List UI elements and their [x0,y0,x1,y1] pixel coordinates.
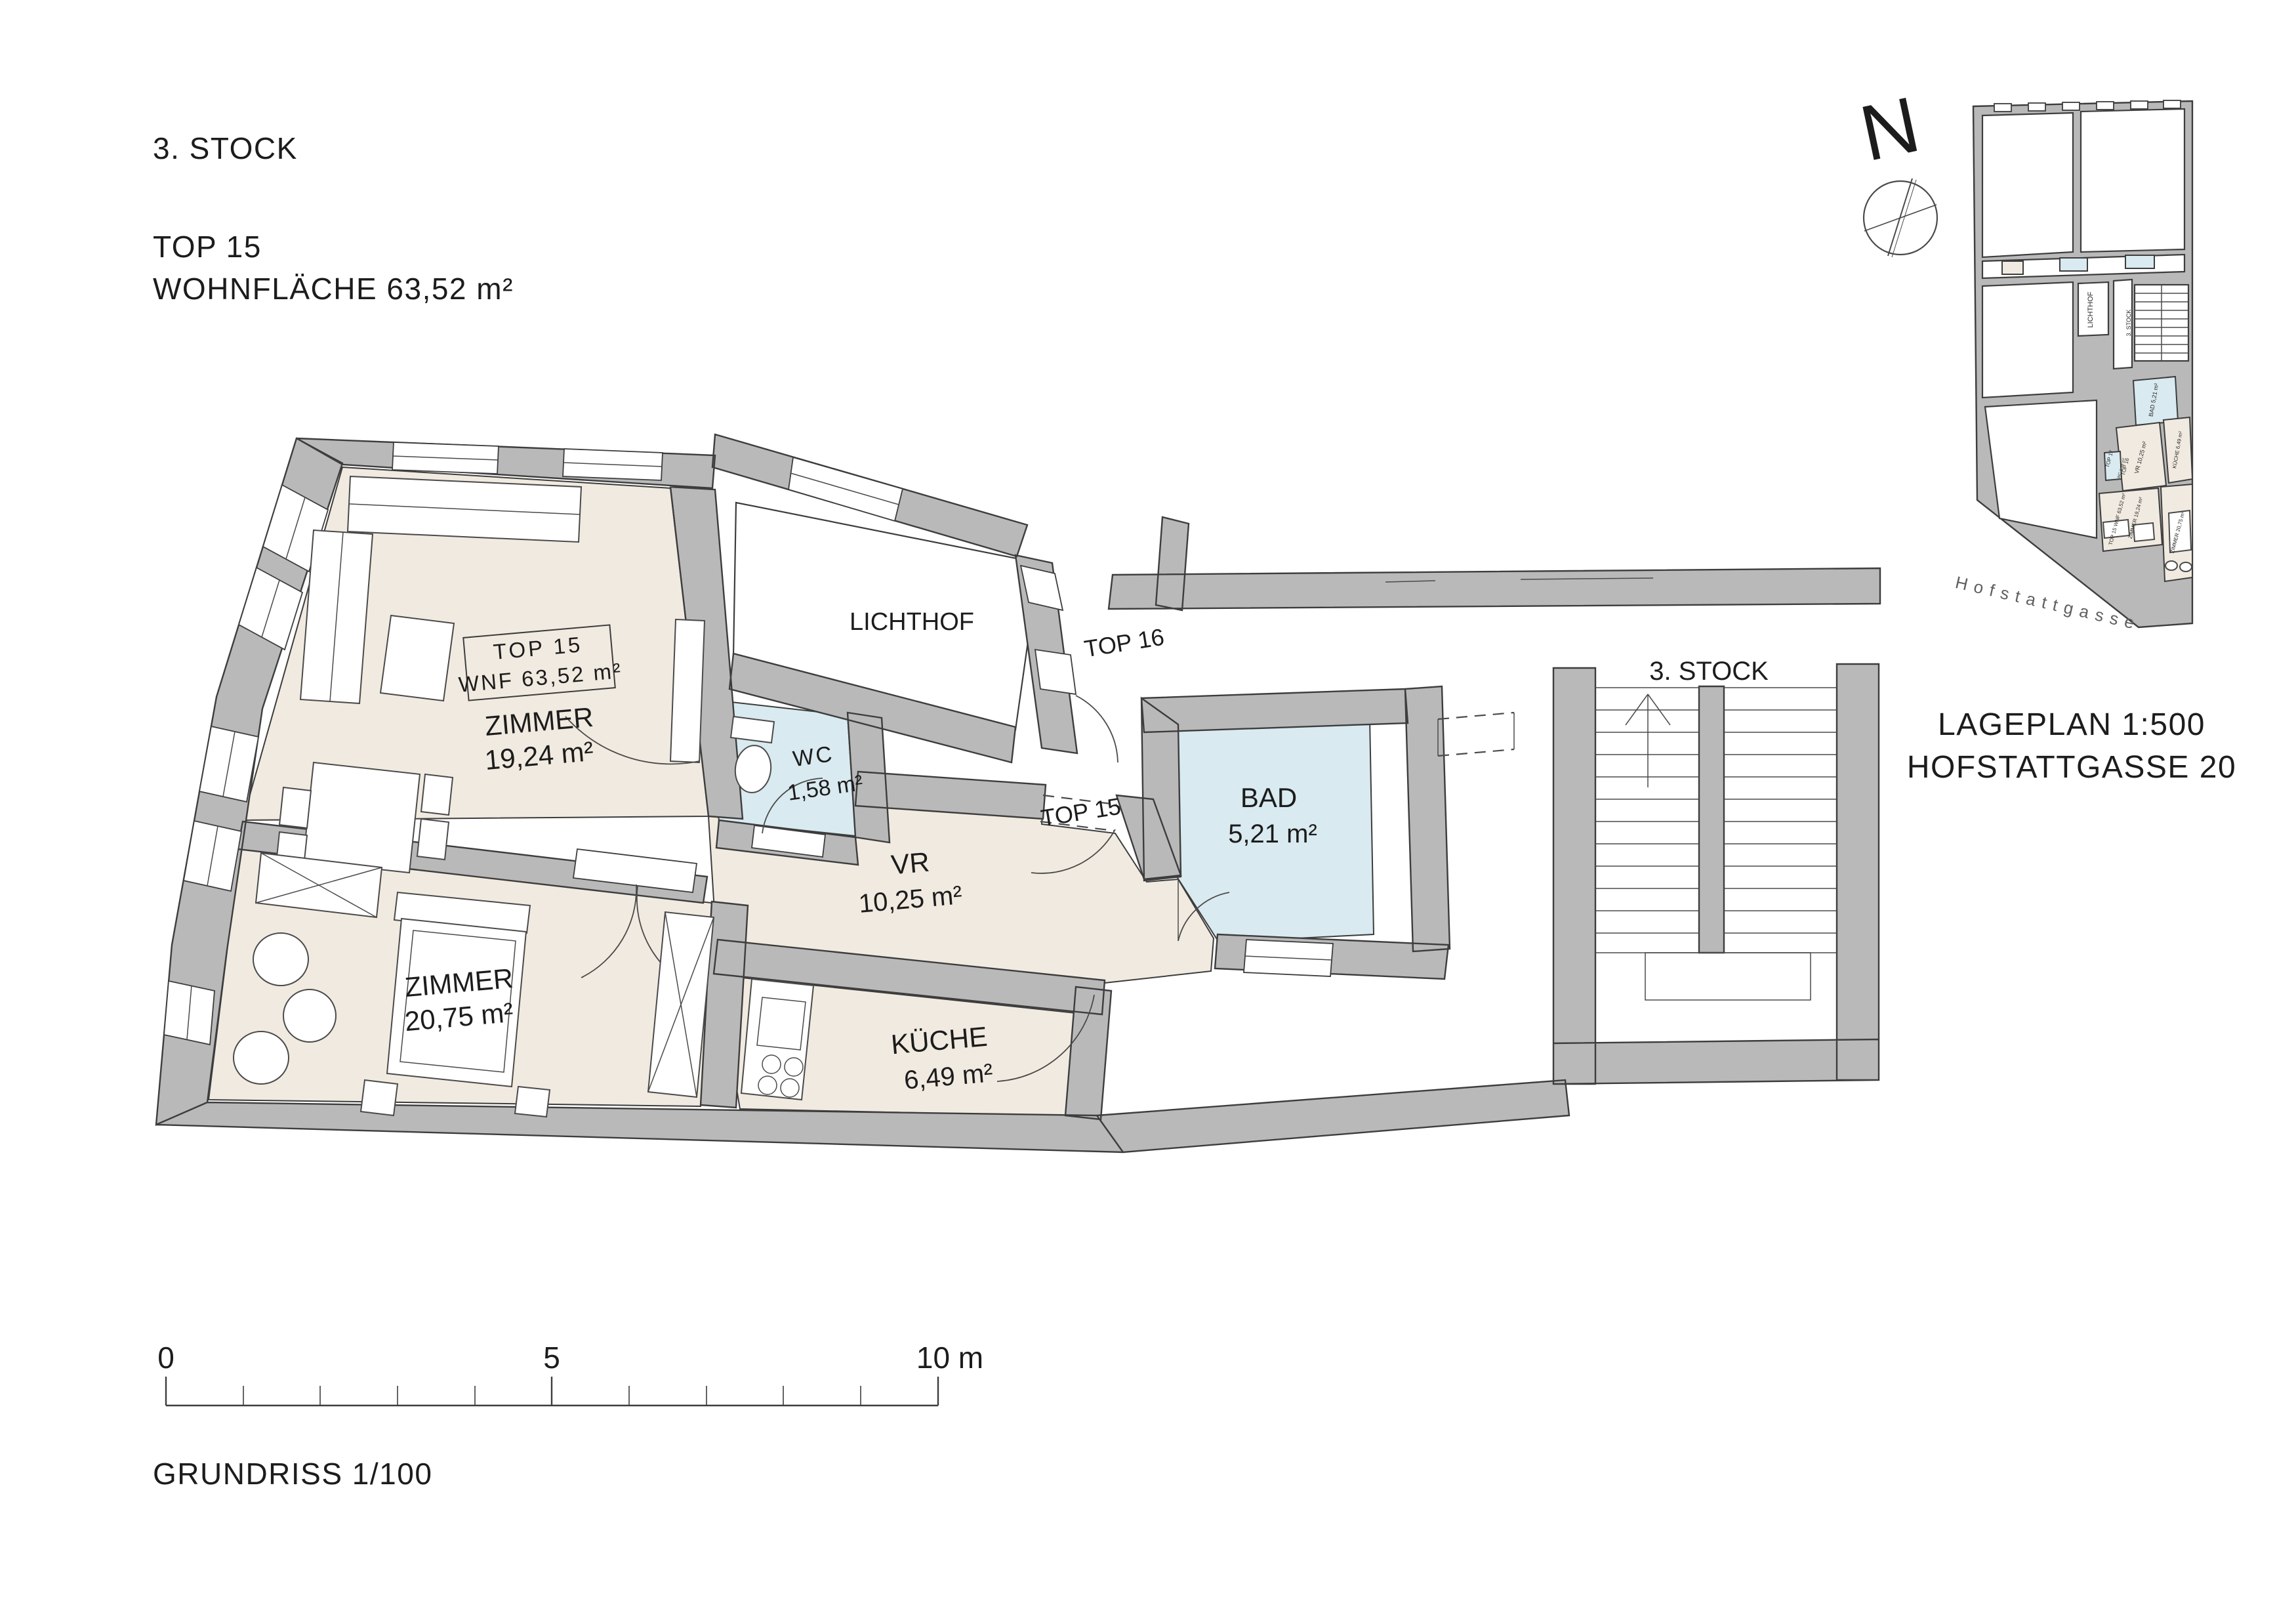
header-floor: 3. STOCK [153,131,298,165]
compass-icon [1864,178,1937,257]
door-label-top15: TOP 15 [1039,793,1123,832]
header-unit: TOP 15 [153,230,262,264]
compass: N [1853,80,1937,257]
header-area: WOHNFLÄCHE 63,52 m² [153,272,514,306]
door-label-top16: TOP 16 [1082,623,1166,663]
bad-area: 5,21 m² [1228,820,1317,848]
bad-name: BAD [1240,782,1297,813]
mini-lichthof: LICHTHOF [2087,291,2095,327]
side-table [283,989,336,1042]
armchair [253,933,308,986]
siteplan: LICHTHOF 3. STOCK TOP 17 TOP 16 BAD 5,21… [1907,100,2236,785]
footer-title: GRUNDRISS 1/100 [153,1457,432,1491]
coffee-table [380,615,454,701]
scale-zero: 0 [157,1341,174,1375]
header: 3. STOCK TOP 15 WOHNFLÄCHE 63,52 m² [153,131,514,306]
scale-bar: 0 5 10 m [157,1341,983,1405]
mini-stock: 3. STOCK [2125,310,2132,337]
kitchen-counter [741,979,813,1100]
siteplan-stairs [2135,285,2188,361]
siteplan-title: LAGEPLAN 1:500 [1938,707,2205,742]
floorplan-page: 3. STOCK TOP 15 WOHNFLÄCHE 63,52 m² [0,0,2296,1624]
vr-name: VR [890,846,930,881]
dining-table [303,762,420,873]
north-letter: N [1853,80,1927,178]
scale-five: 5 [543,1341,560,1375]
stair-up-arrow-icon [1626,694,1670,787]
siteplan-subtitle: HOFSTATTGASSE 20 [1907,750,2236,785]
lichthof-label: LICHTHOF [850,608,974,636]
floorplan-drawing: 3. STOCK TOP 15 WOHNFLÄCHE 63,52 m² [0,0,2296,1624]
armchair [234,1031,289,1084]
scale-ten: 10 m [916,1341,983,1375]
stairs-floor-label: 3. STOCK [1649,657,1769,686]
